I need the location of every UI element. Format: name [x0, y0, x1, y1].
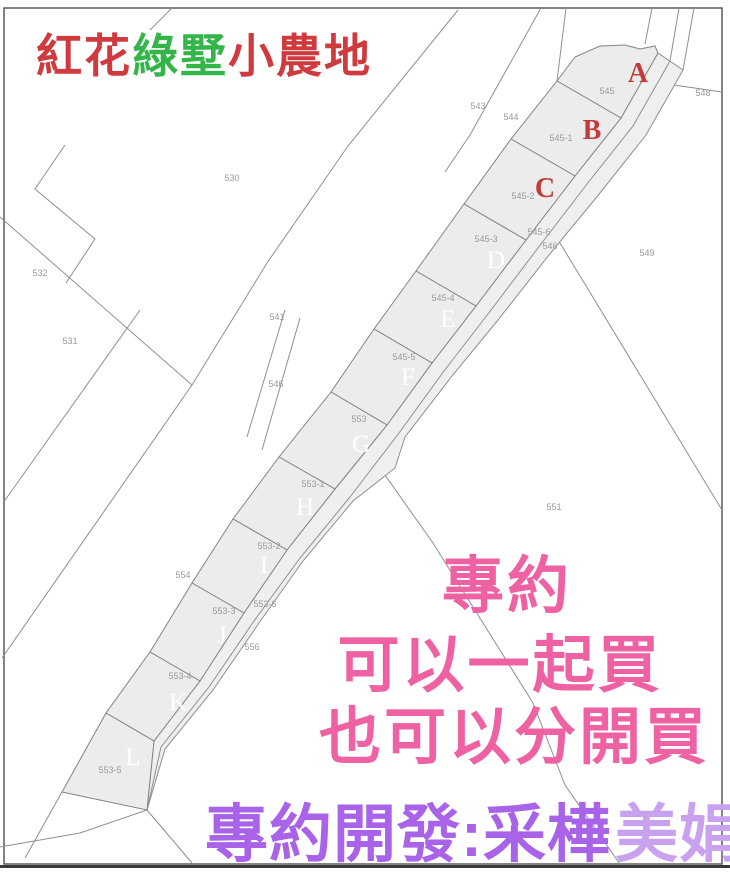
- title-segment-red-2: 小農地: [228, 30, 372, 82]
- parcel-letter-H: H: [296, 494, 314, 521]
- parcel-letter-E: E: [440, 306, 455, 333]
- neighbor-lot-530: 530: [224, 173, 239, 183]
- map-canvas: A B C D E F G H I J K L 545 545-1 545-2 …: [0, 0, 730, 873]
- neighbor-lot-543: 543: [470, 101, 485, 111]
- boundary-line: [35, 145, 95, 283]
- neighbor-lot-531: 531: [62, 336, 77, 346]
- boundary-line: [0, 217, 192, 385]
- parcel-letter-F: F: [401, 364, 415, 391]
- boundary-line: [150, 8, 172, 30]
- parcel-lot-number-C: 545-2: [511, 191, 534, 201]
- neighbor-lot-551: 551: [546, 502, 561, 512]
- footer-agency: 專約開發:采樺: [205, 800, 611, 870]
- parcel-lot-number-H: 553-1: [301, 479, 324, 489]
- parcel-letter-I: I: [260, 552, 268, 579]
- neighbor-lot-544: 544: [503, 112, 518, 122]
- parcel-letter-K: K: [169, 689, 187, 716]
- promo-line-2: 可以一起買: [337, 631, 662, 700]
- neighbor-lot-549: 549: [639, 248, 654, 258]
- parcel-letter-L: L: [125, 744, 140, 771]
- neighbor-lot-554: 554: [175, 570, 190, 580]
- parcel-letter-G: G: [352, 431, 370, 458]
- neighbor-lot-546-west: 546: [268, 379, 283, 389]
- promo-line-3: 也可以分開買: [319, 703, 709, 772]
- neighbor-lot-548: 548: [695, 88, 710, 98]
- footer-text: 專約開發:采樺美娟: [205, 800, 730, 870]
- parcel-letter-A: A: [628, 58, 649, 89]
- promo-text: 專約 可以一起買 也可以分開買: [319, 552, 709, 772]
- cadastral-map-page: A B C D E F G H I J K L 545 545-1 545-2 …: [0, 0, 730, 873]
- footer-agent: 美娟: [615, 800, 730, 870]
- neighbor-lot-532: 532: [32, 268, 47, 278]
- parcel-lot-number-A: 545: [599, 86, 614, 96]
- parcel-letter-D: D: [487, 247, 505, 274]
- parcel-lot-number-D: 545-3: [474, 234, 497, 244]
- boundary-line: [645, 8, 652, 44]
- neighbor-lot-546-east: 546: [542, 241, 557, 251]
- parcel-lot-number-F: 545-5: [392, 352, 415, 362]
- boundary-line: [670, 8, 679, 61]
- parcel-lot-number-E: 545-4: [431, 293, 454, 303]
- parcel-lot-number-I: 553-2: [257, 541, 280, 551]
- neighbor-lot-553-6: 553-6: [253, 599, 276, 609]
- promo-line-1: 專約: [442, 552, 572, 621]
- parcel-lot-number-B: 545-1: [549, 133, 572, 143]
- neighbor-lot-545-6: 545-6: [527, 227, 550, 237]
- parcel-lot-number-L: 553-5: [98, 765, 121, 775]
- title-segment-green: 綠墅: [132, 30, 228, 82]
- parcel-letter-C: C: [535, 173, 555, 204]
- parcel-lot-number-K: 553-4: [168, 671, 191, 681]
- parcel-lot-number-J: 553-3: [212, 606, 235, 616]
- boundary-line: [25, 792, 62, 858]
- boundary-line: [147, 810, 192, 863]
- page-title: 紅花綠墅小農地: [36, 30, 372, 82]
- boundary-line: [247, 310, 285, 437]
- title-segment-red-1: 紅花: [36, 30, 132, 82]
- boundary-line: [683, 8, 694, 70]
- boundary-line: [0, 810, 147, 847]
- neighbor-lot-556: 556: [244, 642, 259, 652]
- neighbor-lot-541: 541: [269, 312, 284, 322]
- parcel-letter-B: B: [583, 115, 602, 146]
- boundary-line: [560, 243, 722, 510]
- parcel-lot-number-G: 553: [351, 414, 366, 424]
- parcel-letter-J: J: [217, 622, 227, 649]
